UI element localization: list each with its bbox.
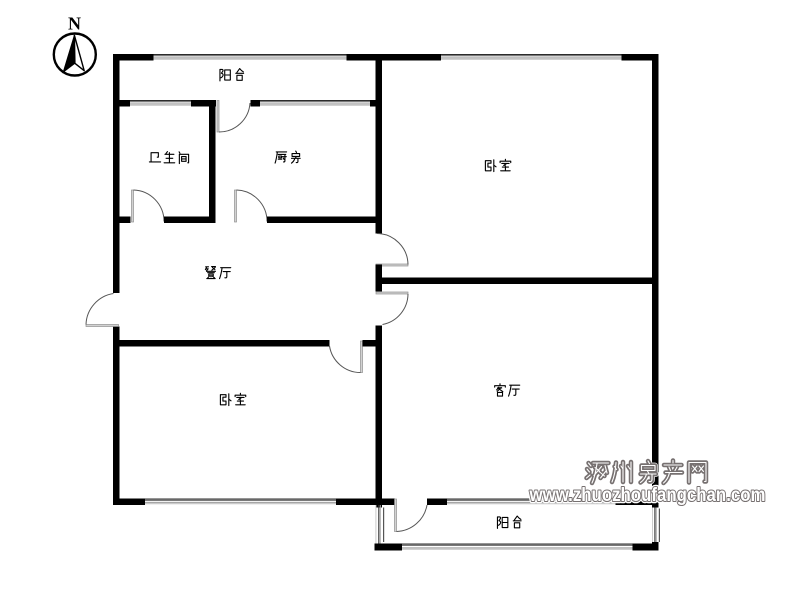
svg-text:N: N [68,14,81,34]
svg-text:www.zhuozhoufangchan.com: www.zhuozhoufangchan.com [529,484,766,506]
